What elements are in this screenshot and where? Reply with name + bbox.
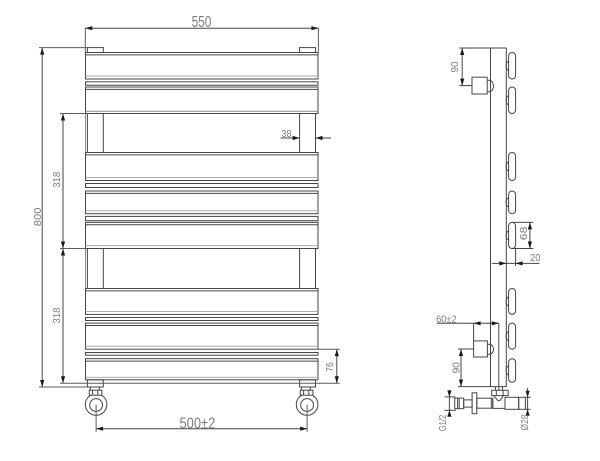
svg-text:G1/2: G1/2 [437,415,449,432]
svg-text:Ø28: Ø28 [519,415,531,431]
svg-text:90: 90 [450,362,462,374]
svg-text:318: 318 [51,307,63,323]
svg-text:68: 68 [518,226,530,240]
svg-text:550: 550 [192,14,212,31]
svg-text:60±2: 60±2 [436,313,457,325]
svg-text:90: 90 [449,61,461,72]
svg-text:500±2: 500±2 [180,415,216,432]
svg-text:800: 800 [32,207,44,226]
svg-text:318: 318 [51,172,63,188]
svg-text:20: 20 [530,252,541,264]
svg-text:38: 38 [282,128,292,140]
svg-text:76: 76 [324,362,336,372]
